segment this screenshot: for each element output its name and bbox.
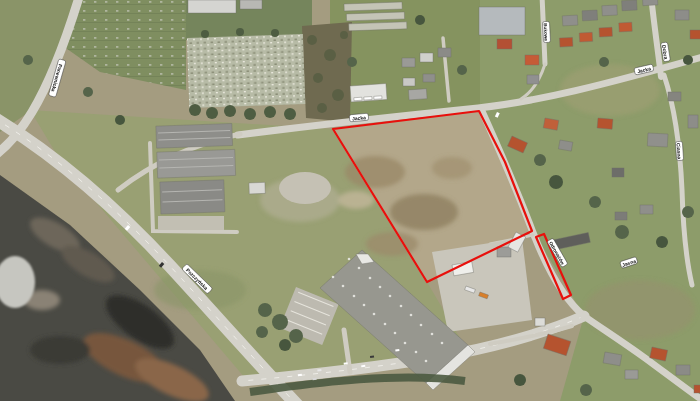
svg-text:Ciasna: Ciasna: [676, 143, 683, 160]
cemetery: [187, 34, 305, 108]
street-label-bukowa: Bukowa: [542, 21, 550, 42]
rubble-pad: [279, 172, 331, 204]
street-label-jacka-west: Jacka: [349, 113, 369, 122]
service-yard: [432, 238, 532, 332]
halls-parking: [158, 216, 224, 230]
svg-text:Jacka: Jacka: [352, 114, 367, 121]
map-canvas[interactable]: Panewnicka Pszczyńska Jacka Jacka Dobra …: [0, 0, 700, 401]
aerial-map-view[interactable]: Panewnicka Pszczyńska Jacka Jacka Dobra …: [0, 0, 700, 401]
street-label-ciasna: Ciasna: [675, 141, 683, 160]
svg-text:Bukowa: Bukowa: [543, 23, 549, 41]
